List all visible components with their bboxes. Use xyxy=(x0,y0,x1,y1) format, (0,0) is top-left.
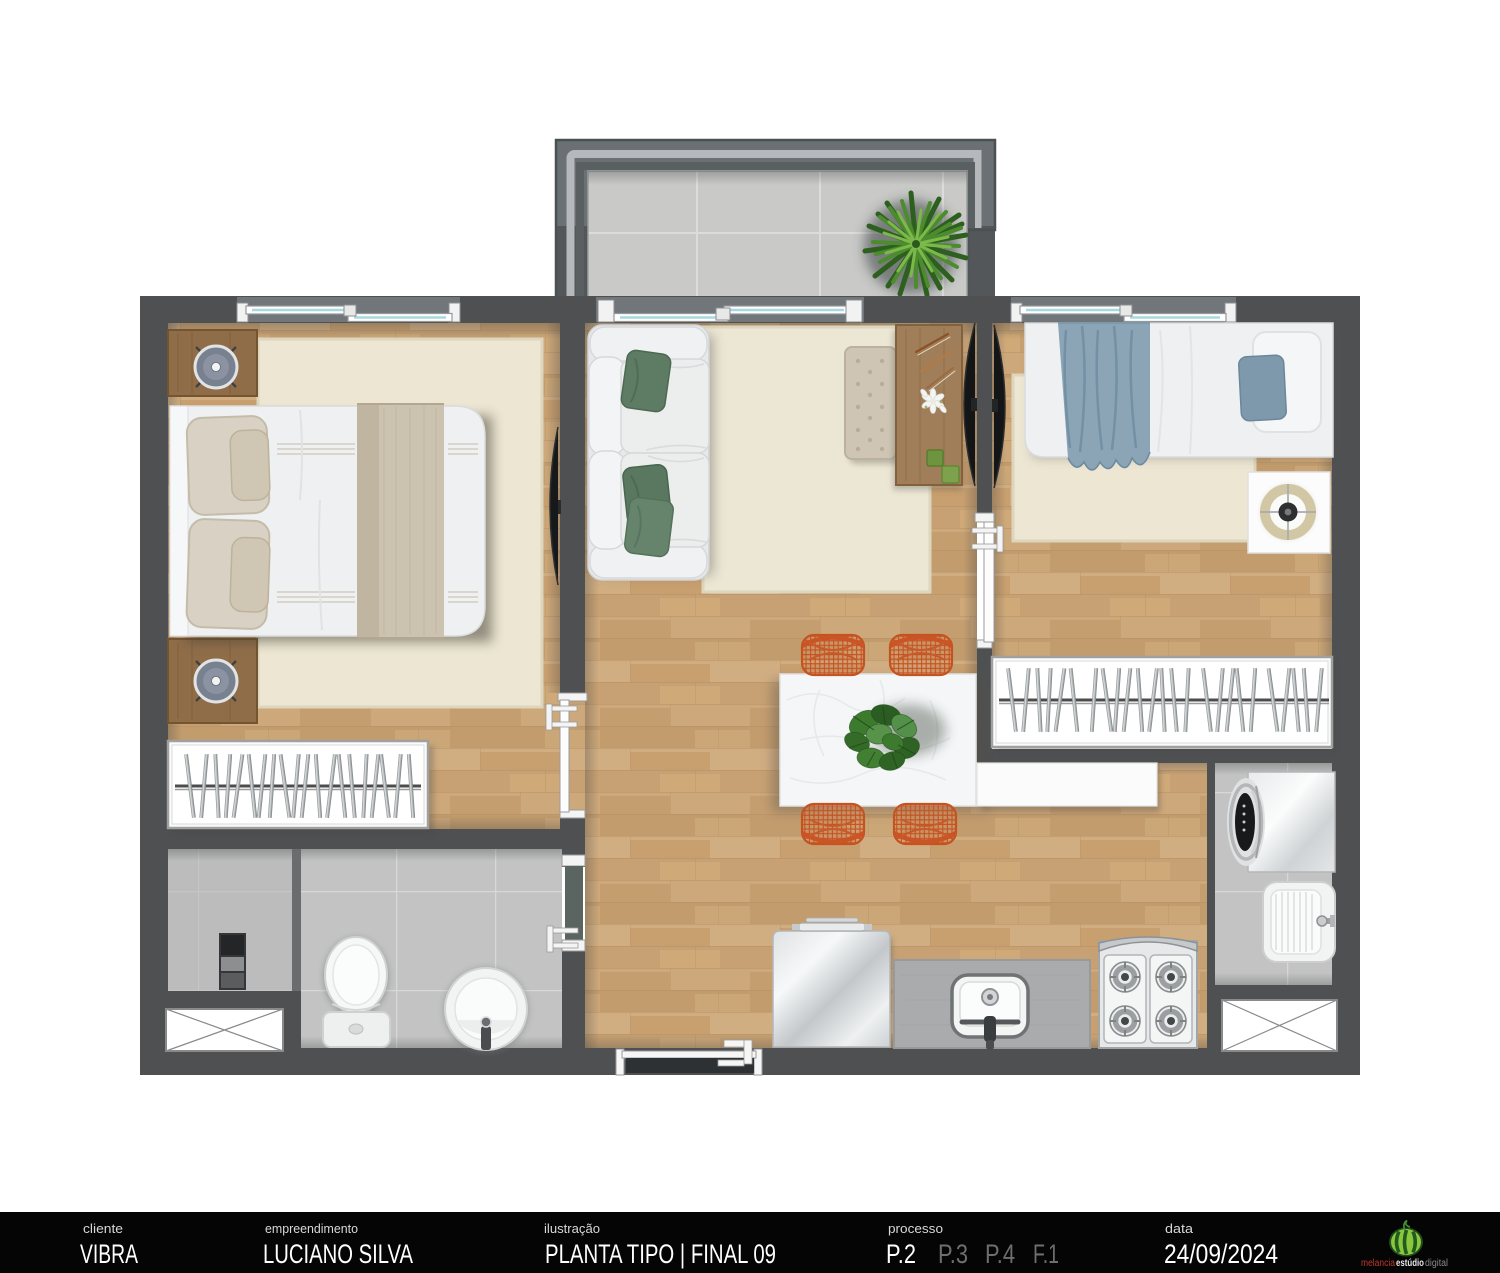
svg-text:LUCIANO SILVA: LUCIANO SILVA xyxy=(263,1239,413,1269)
svg-text:digital: digital xyxy=(1425,1258,1448,1269)
svg-text:P.2: P.2 xyxy=(886,1239,916,1269)
svg-text:P.4: P.4 xyxy=(985,1239,1015,1269)
svg-text:VIBRA: VIBRA xyxy=(80,1239,138,1269)
svg-text:F.1: F.1 xyxy=(1033,1239,1059,1269)
svg-text:estúdio: estúdio xyxy=(1396,1258,1424,1269)
svg-text:P.3: P.3 xyxy=(938,1239,968,1269)
svg-text:cliente: cliente xyxy=(83,1221,123,1236)
svg-text:PLANTA TIPO | FINAL 09: PLANTA TIPO | FINAL 09 xyxy=(545,1239,776,1269)
svg-text:melancia: melancia xyxy=(1361,1258,1395,1269)
svg-text:data: data xyxy=(1165,1221,1194,1236)
svg-text:processo: processo xyxy=(888,1221,943,1236)
svg-text:ilustração: ilustração xyxy=(544,1221,600,1236)
svg-text:24/09/2024: 24/09/2024 xyxy=(1164,1239,1278,1269)
svg-text:empreendimento: empreendimento xyxy=(265,1221,358,1236)
